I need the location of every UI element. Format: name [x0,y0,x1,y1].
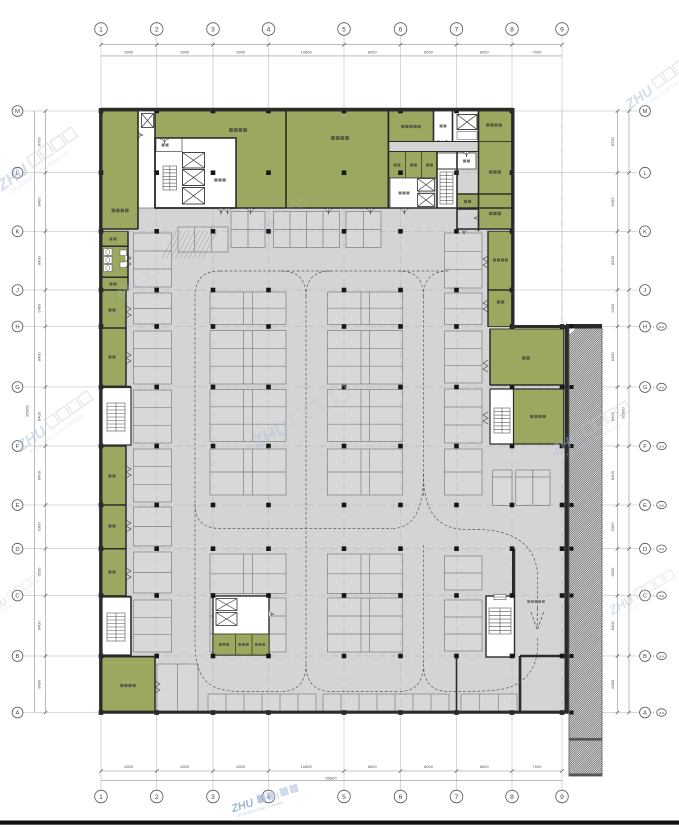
svg-text:8000: 8000 [124,764,134,769]
svg-text:8000: 8000 [480,764,490,769]
svg-text:a-a: a-a [659,503,664,507]
svg-text:8400: 8400 [37,352,42,362]
svg-text:E: E [16,503,20,509]
svg-text:A: A [16,711,20,717]
svg-text:8000: 8000 [236,50,246,55]
svg-text:a-a: a-a [659,385,664,389]
svg-text:7000: 7000 [533,50,543,55]
svg-text:1: 1 [99,26,103,33]
svg-text:8400: 8400 [610,255,615,265]
svg-text:a-a: a-a [659,325,664,329]
svg-text:D: D [643,547,647,553]
svg-text:8700: 8700 [37,137,42,147]
svg-text:H: H [643,325,647,331]
svg-text:B: B [16,654,20,660]
svg-text:K: K [643,229,647,235]
svg-text:8400: 8400 [37,255,42,265]
svg-text:6500: 6500 [610,567,615,577]
svg-text:8000: 8000 [368,764,378,769]
svg-text:8400: 8400 [37,411,42,421]
svg-text:10800: 10800 [301,764,313,769]
svg-text:8400: 8400 [610,679,615,689]
svg-text:8000: 8000 [124,50,134,55]
svg-text:8400: 8400 [610,470,615,480]
svg-text:8000: 8000 [424,50,434,55]
svg-text:8000: 8000 [424,764,434,769]
svg-text:8: 8 [510,26,514,33]
svg-text:J: J [16,288,19,294]
svg-text:B: B [643,654,647,660]
svg-text:6: 6 [399,26,403,33]
svg-text:4: 4 [267,26,271,33]
svg-text:8000: 8000 [480,50,490,55]
svg-text:8000: 8000 [368,50,378,55]
svg-text:8400: 8400 [37,470,42,480]
svg-text:G: G [643,385,648,391]
svg-text:6300: 6300 [37,522,42,532]
svg-text:85900: 85900 [621,407,626,419]
svg-text:7: 7 [455,26,459,33]
svg-text:2: 2 [155,794,159,801]
svg-text:9: 9 [560,794,564,801]
svg-text:8: 8 [510,794,514,801]
svg-text:85900: 85900 [25,405,30,417]
svg-text:F: F [643,444,647,450]
svg-text:8000: 8000 [180,50,190,55]
svg-text:5400: 5400 [610,303,615,313]
svg-text:6300: 6300 [610,522,615,532]
svg-text:8000: 8000 [180,764,190,769]
svg-text:6: 6 [399,794,403,801]
svg-text:8400: 8400 [37,621,42,631]
svg-text:6500: 6500 [37,567,42,577]
svg-text:3: 3 [211,794,215,801]
svg-text:8700: 8700 [610,137,615,147]
svg-text:8400: 8400 [610,197,615,207]
svg-text:5400: 5400 [37,303,42,313]
svg-text:a-a: a-a [659,654,664,658]
svg-text:7: 7 [455,794,459,801]
svg-text:M: M [15,109,20,115]
svg-text:D: D [15,547,19,553]
svg-text:a-a: a-a [659,711,664,715]
svg-text:10800: 10800 [301,50,313,55]
svg-text:G: G [15,385,20,391]
svg-text:1: 1 [99,794,103,801]
svg-text:2: 2 [155,26,159,33]
svg-text:8400: 8400 [610,352,615,362]
svg-text:J: J [644,288,647,294]
svg-text:H: H [15,325,19,331]
svg-text:a-a: a-a [659,444,664,448]
svg-text:a-a: a-a [659,547,664,551]
svg-text:E: E [643,503,647,509]
svg-text:8000: 8000 [236,764,246,769]
svg-text:3: 3 [211,26,215,33]
svg-text:8400: 8400 [37,679,42,689]
svg-text:9: 9 [560,26,564,33]
svg-text:65800: 65800 [325,775,337,780]
svg-text:8400: 8400 [610,621,615,631]
svg-text:A: A [643,711,647,717]
svg-text:7000: 7000 [533,764,543,769]
svg-text:5: 5 [342,26,346,33]
svg-text:8400: 8400 [37,197,42,207]
svg-text:K: K [16,229,20,235]
svg-text:5: 5 [342,794,346,801]
